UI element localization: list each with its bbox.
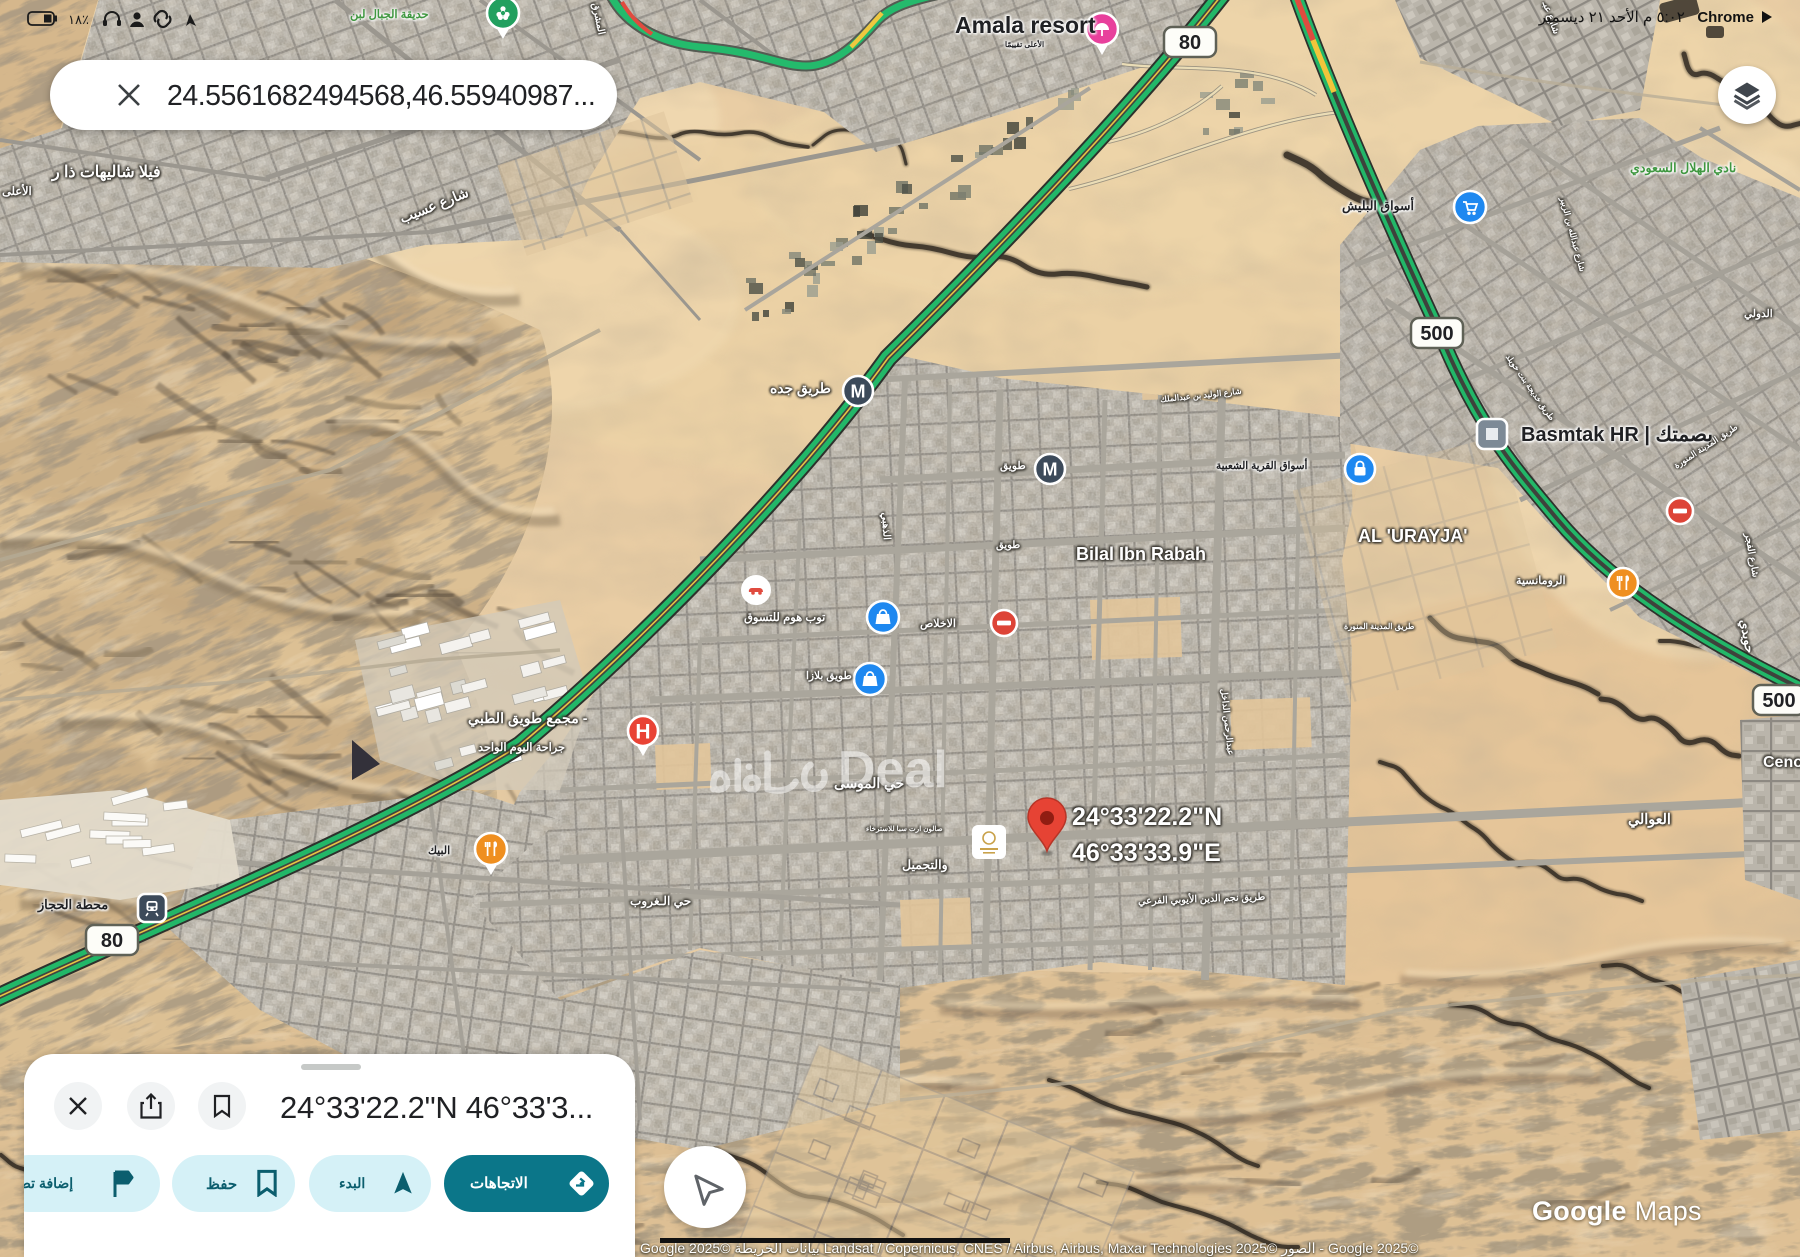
svg-text:H: H bbox=[635, 721, 650, 744]
svg-text:M: M bbox=[851, 382, 866, 402]
svg-text:M: M bbox=[1043, 460, 1058, 480]
svg-text:١٨٪: ١٨٪ bbox=[68, 12, 89, 27]
